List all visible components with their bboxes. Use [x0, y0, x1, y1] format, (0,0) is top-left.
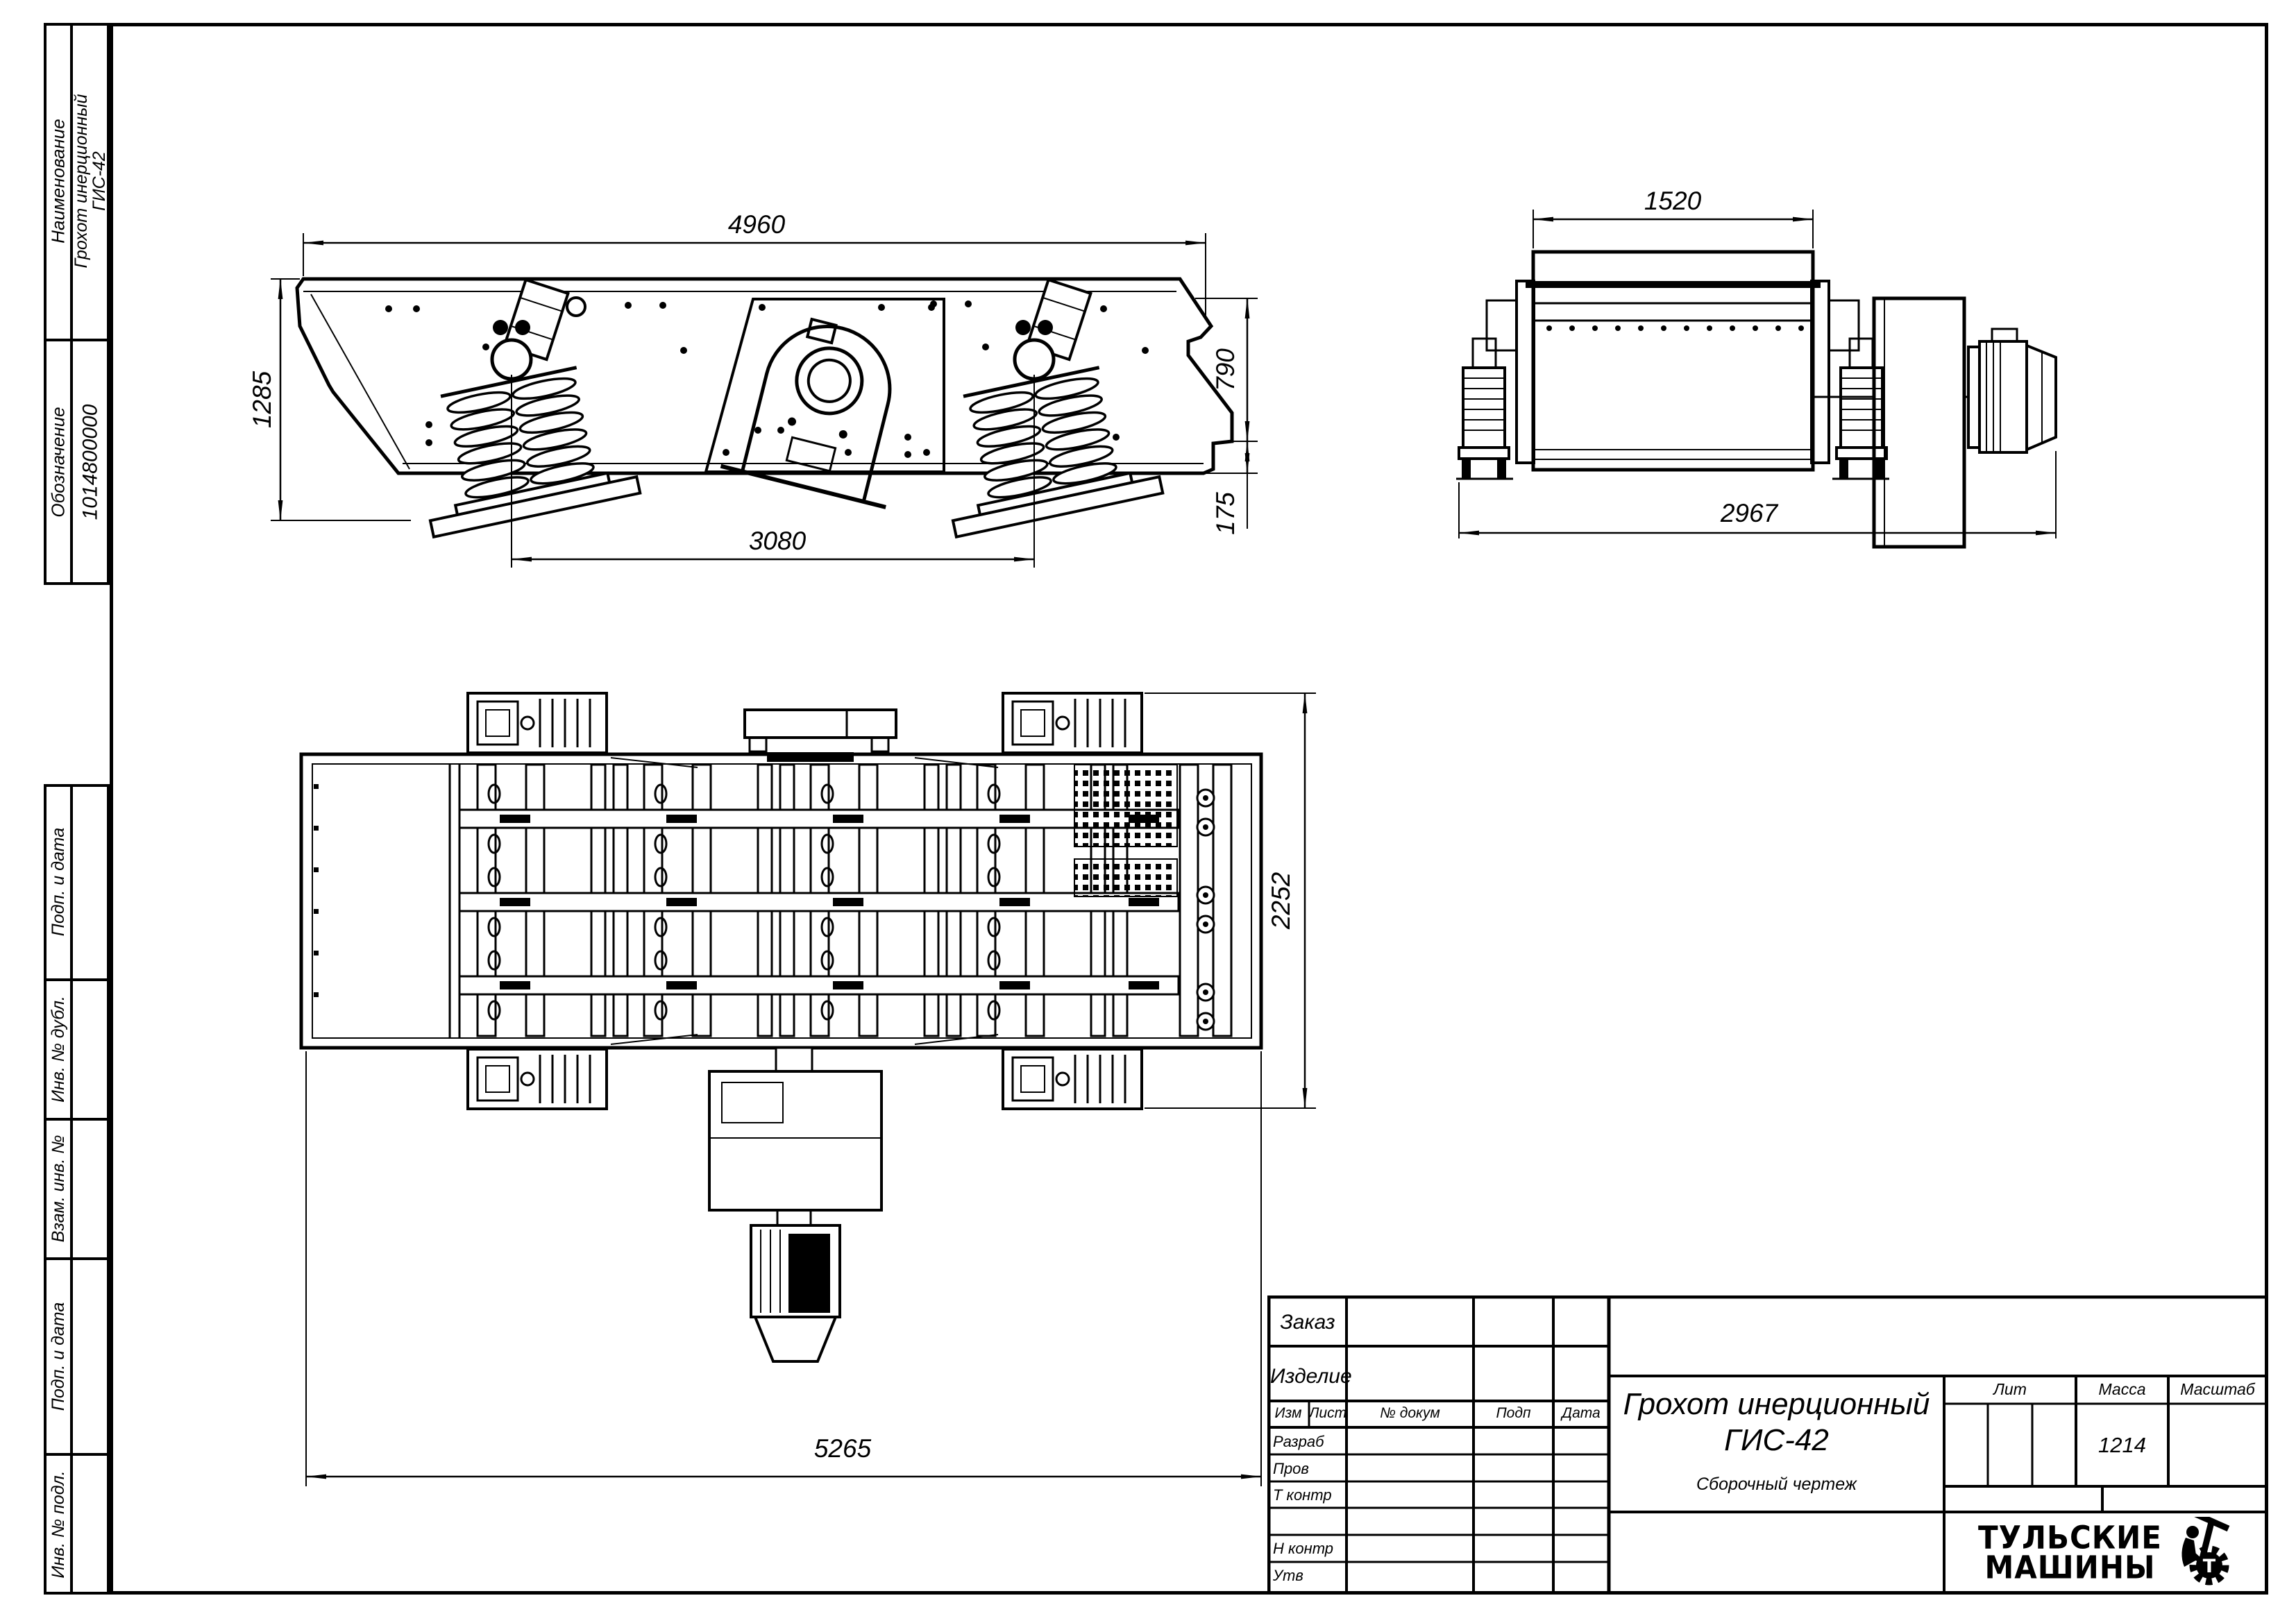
order-row-label: Заказ [1270, 1311, 1345, 1334]
logo-line2: МАШИНЫ [1978, 1553, 2162, 1583]
plan-right-rails [1180, 765, 1231, 1036]
sign-row-label: Разраб [1273, 1433, 1324, 1451]
plan-spring-mount-bottom-right [1003, 1049, 1142, 1109]
product-row-label: Изделие [1270, 1365, 1345, 1388]
dimension-end-overall-width: 2967 [1459, 451, 2056, 538]
plan-cross-beams [459, 810, 1179, 994]
blacksmith-gear-emblem-icon: Т [2173, 1517, 2233, 1589]
end-view-spring-left [1456, 339, 1513, 479]
header-data-label: Дата [1553, 1405, 1609, 1422]
header-list-label: Лист [1309, 1405, 1347, 1422]
sign-row-label: Пров [1273, 1460, 1309, 1478]
plan-spring-mount-top-left [468, 693, 607, 753]
dimension-end-deck-width: 1520 [1533, 187, 1813, 248]
header-doc-label: № докум [1347, 1405, 1474, 1422]
sign-row-label: Утв [1273, 1567, 1303, 1585]
end-view-mesh-hooks [1546, 325, 1804, 331]
plan-view: 2252 5265 [301, 693, 1316, 1486]
company-logo: ТУЛЬСКИЕ МАШИНЫ Т [1944, 1512, 2267, 1593]
emblem-letter: Т [2203, 1556, 2216, 1577]
dim-end-deck-width-value: 1520 [1644, 187, 1702, 215]
plan-feed-wall-bolts [314, 784, 319, 997]
drawing-sheet: Наименование Грохот инерционный ГИС-42 О… [0, 0, 2296, 1623]
plan-spring-mount-bottom-left [468, 1049, 607, 1109]
end-view: 1520 2967 [1456, 187, 2056, 547]
dim-end-overall-width-value: 2967 [1720, 499, 1779, 527]
dim-side-length-value: 4960 [728, 210, 786, 239]
plan-mesh-patch-small [1074, 859, 1177, 897]
dim-side-lip-height-value: 175 [1211, 492, 1240, 535]
dimension-side-right-height: 790 [1195, 298, 1258, 441]
dim-plan-length-value: 5265 [814, 1434, 872, 1463]
header-podp-label: Подп [1474, 1405, 1553, 1422]
dim-side-right-height-value: 790 [1211, 348, 1240, 391]
scale-header-label: Масштаб [2168, 1380, 2267, 1399]
plan-motor-assembly [709, 1048, 881, 1361]
header-izm-label: Изм [1267, 1405, 1309, 1422]
document-type-label: Сборочный чертеж [1609, 1475, 1944, 1495]
plan-spring-mount-top-right [1003, 693, 1142, 753]
sign-row-label: Т контр [1273, 1486, 1332, 1504]
sign-row-label: Н контр [1273, 1540, 1333, 1558]
dim-plan-width-value: 2252 [1267, 872, 1295, 930]
plan-view-deck [301, 754, 1261, 1048]
mass-value: 1214 [2076, 1433, 2168, 1458]
lit-header-label: Лит [1944, 1380, 2076, 1399]
document-title-line2: ГИС-42 [1609, 1423, 1944, 1458]
side-view-spring-left [405, 280, 640, 537]
mass-header-label: Масса [2076, 1380, 2168, 1399]
side-view-spring-right [928, 280, 1163, 537]
side-view-vibrator [706, 299, 944, 507]
document-title-line1: Грохот инерционный [1609, 1387, 1944, 1422]
end-view-body [1487, 252, 1859, 470]
plan-mesh-patch [1074, 765, 1177, 847]
title-block: Заказ Изделие Изм Лист № докум Подп Дата… [1267, 1295, 2268, 1595]
dim-side-height-value: 1285 [248, 371, 276, 428]
logo-line1: ТУЛЬСКИЕ [1978, 1522, 2162, 1552]
dimension-side-height: 1285 [248, 279, 411, 520]
side-view: 4960 1285 3080 790 [248, 210, 1258, 568]
dim-side-spring-span-value: 3080 [749, 527, 807, 555]
end-view-spring-right [1832, 339, 1889, 479]
